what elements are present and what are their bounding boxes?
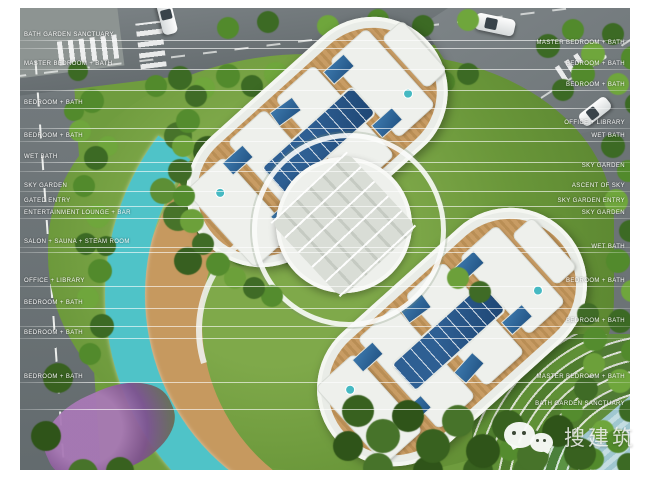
watermark: 搜建筑 [504, 420, 644, 460]
screenshot-page: BATH GARDEN SANCTUARYMASTER BEDROOM + BA… [0, 0, 650, 481]
wechat-icon [504, 422, 558, 458]
forest-bottom [20, 8, 36, 24]
wechat-bubble-tail [507, 444, 520, 457]
aerial-render [20, 8, 630, 470]
wechat-bubble-tail [543, 449, 553, 459]
watermark-text: 搜建筑 [564, 422, 636, 452]
